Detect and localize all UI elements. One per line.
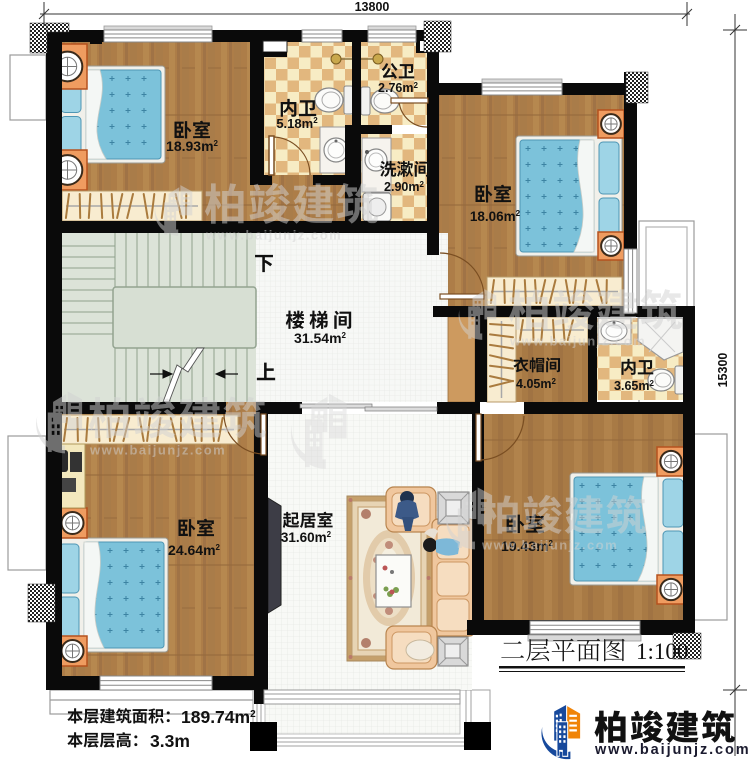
svg-text:15300: 15300 [716,353,730,388]
svg-text:18.06m2: 18.06m2 [470,209,521,224]
svg-text:4.05m2: 4.05m2 [516,377,556,391]
svg-text:2.90m2: 2.90m2 [384,180,424,194]
svg-text:www.baijunjz.com: www.baijunjz.com [89,442,226,457]
svg-text:24.64m2: 24.64m2 [168,542,220,558]
svg-text:31.54m2: 31.54m2 [294,330,346,346]
svg-text:31.60m2: 31.60m2 [281,530,332,545]
svg-text:13800: 13800 [355,0,390,14]
svg-text:www.baijunjz.com: www.baijunjz.com [594,742,750,758]
svg-text:3.65m2: 3.65m2 [614,379,654,393]
svg-text:www.baijunjz.com: www.baijunjz.com [205,228,342,243]
svg-text:www.baijunjz.com: www.baijunjz.com [481,537,618,552]
svg-text:www.baijunjz.com: www.baijunjz.com [509,334,646,349]
svg-text:5.18m2: 5.18m2 [276,116,318,131]
svg-text:2.76m2: 2.76m2 [378,81,418,95]
svg-text:3.3m: 3.3m [150,731,190,751]
svg-text:18.93m2: 18.93m2 [166,138,218,154]
svg-text:189.74m2: 189.74m2 [181,707,256,727]
svg-text:1:100: 1:100 [636,639,688,664]
